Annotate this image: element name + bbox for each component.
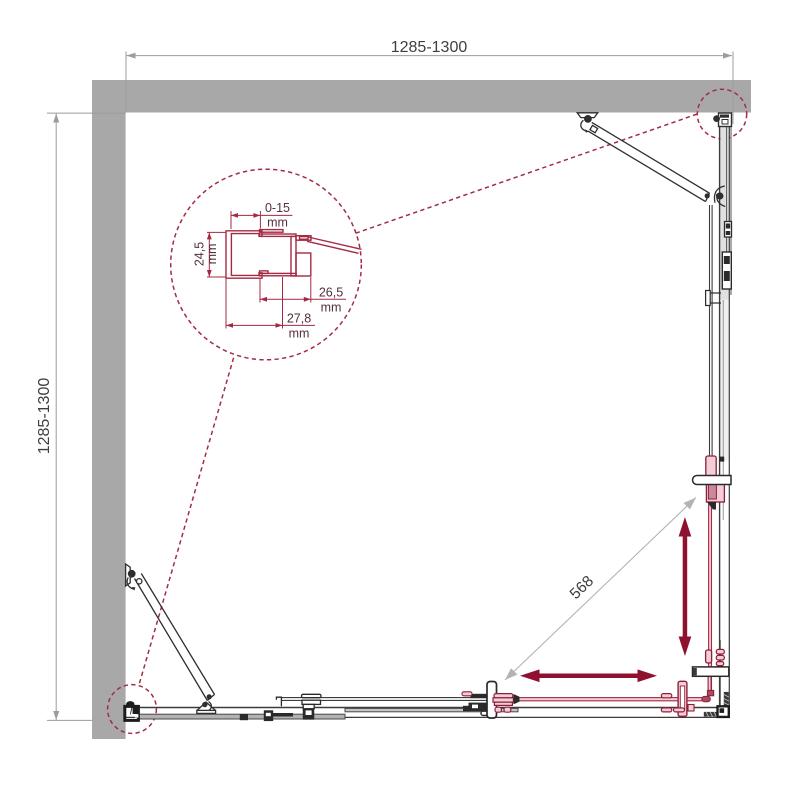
svg-text:mm: mm	[205, 244, 219, 265]
svg-text:mm: mm	[267, 216, 288, 230]
svg-text:0-15: 0-15	[265, 201, 290, 215]
svg-text:mm: mm	[289, 327, 310, 341]
svg-text:568: 568	[567, 573, 597, 603]
svg-text:1285-1300: 1285-1300	[36, 378, 53, 455]
svg-text:1285-1300: 1285-1300	[391, 39, 468, 56]
svg-text:26,5: 26,5	[319, 286, 343, 300]
svg-text:mm: mm	[321, 301, 342, 315]
svg-text:27,8: 27,8	[287, 312, 311, 326]
